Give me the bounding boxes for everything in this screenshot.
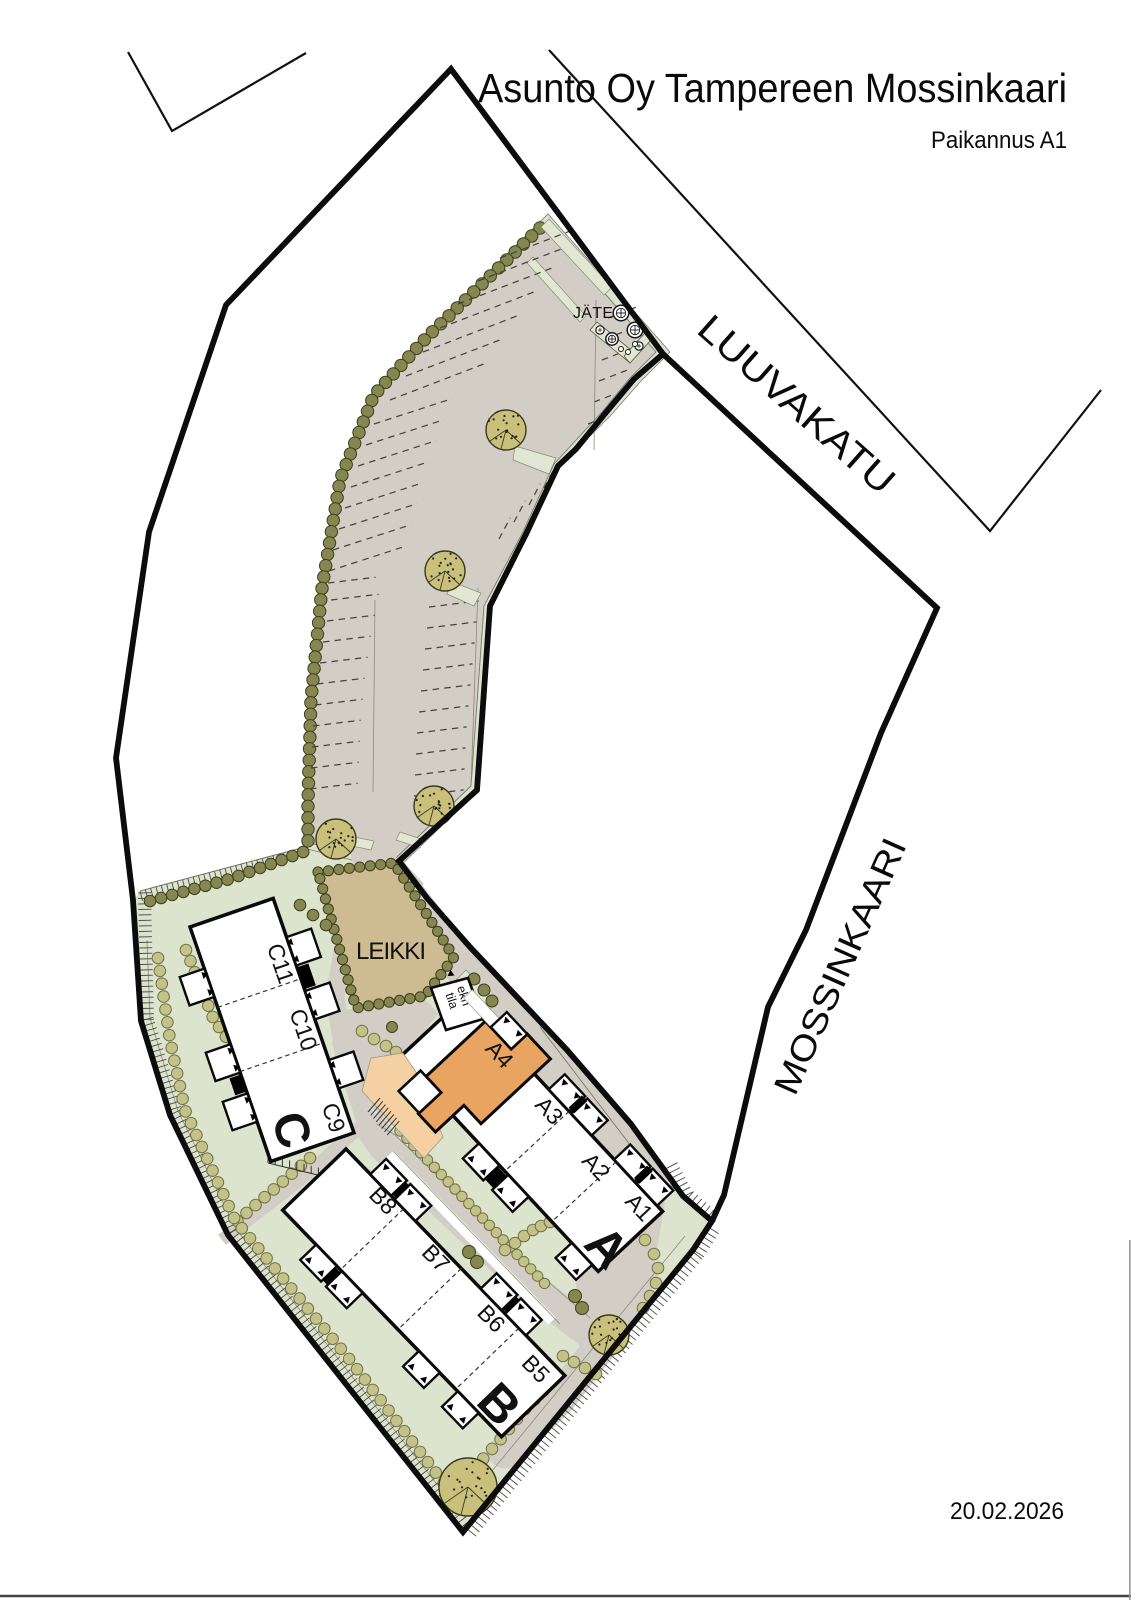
svg-text:JÄTE: JÄTE bbox=[573, 304, 613, 322]
svg-text:Paikannus A1: Paikannus A1 bbox=[931, 127, 1067, 154]
svg-text:20.02.2026: 20.02.2026 bbox=[950, 1498, 1064, 1525]
svg-text:Asunto Oy Tampereen Mossinkaar: Asunto Oy Tampereen Mossinkaari bbox=[478, 65, 1067, 111]
svg-text:LEIKKI: LEIKKI bbox=[356, 938, 426, 965]
